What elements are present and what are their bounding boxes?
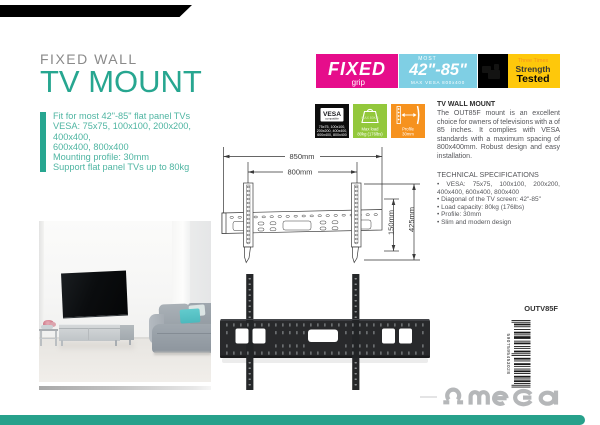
svg-text:5907595453028: 5907595453028 (506, 333, 511, 374)
svg-text:150mm: 150mm (387, 210, 396, 235)
svg-text:800mm: 800mm (287, 168, 312, 177)
svg-text:850mm: 850mm (289, 152, 314, 161)
svg-text:425mm: 425mm (407, 207, 416, 232)
svg-text:OUTV85F: OUTV85F (524, 304, 558, 313)
